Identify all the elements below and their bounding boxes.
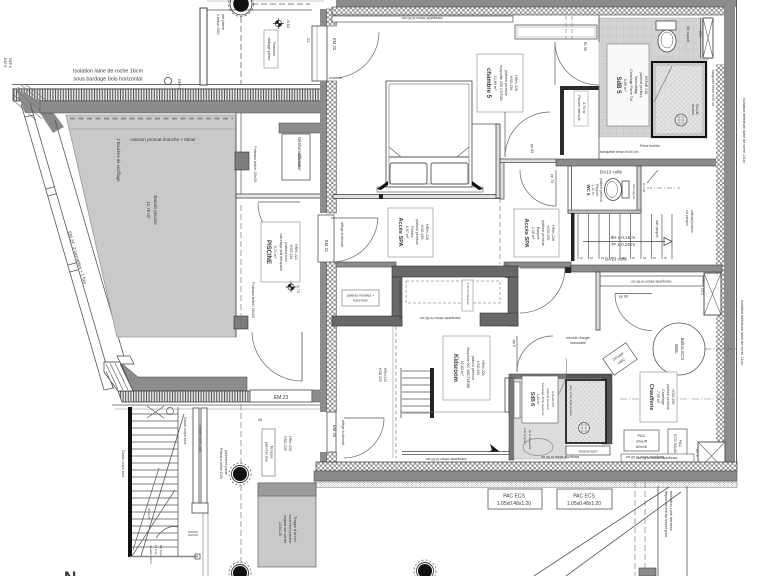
svg-text:N: N	[64, 568, 76, 576]
svg-text:SM support: SM support	[686, 26, 690, 42]
svg-text:2,44 m²: 2,44 m²	[536, 394, 540, 405]
svg-text:Chaufferie: Chaufferie	[648, 384, 654, 411]
svg-text:1.05x0.48x1.20: 1.05x0.48x1.20	[567, 501, 601, 507]
svg-text:sol parquet: sol parquet	[685, 210, 689, 226]
svg-text:ent pierre: ent pierre	[221, 14, 225, 30]
svg-text:EL 98: EL 98	[583, 42, 587, 51]
svg-text:2,40 m²: 2,40 m²	[531, 227, 535, 240]
svg-text:Carrelage Pierre Tuf: Carrelage Pierre Tuf	[629, 69, 633, 101]
svg-text:chauff: chauff	[636, 439, 648, 444]
svg-text:Carrelage Brok diamond: Carrelage Brok diamond	[541, 383, 545, 416]
svg-text:banquette béton ht 60 cm: banquette béton ht 60 cm	[631, 279, 672, 283]
svg-text:GT2: GT2	[700, 288, 704, 295]
svg-text:pp 8: pp 8	[512, 340, 516, 347]
svg-text:11,70 m²: 11,70 m²	[146, 201, 151, 219]
svg-text:DEP 6: DEP 6	[8, 58, 12, 68]
svg-text:PAC ECS: PAC ECS	[503, 494, 525, 500]
svg-text:SM support: SM support	[632, 184, 636, 200]
svg-text:local tech piscine: local tech piscine	[288, 515, 292, 544]
svg-text:2 bouches de soufflage: 2 bouches de soufflage	[116, 138, 121, 182]
svg-text:HRni 215: HRni 215	[288, 436, 292, 451]
svg-text:vide poignée: vide poignée	[523, 428, 527, 444]
svg-text:22: 22	[306, 38, 311, 43]
svg-text:banc bois: banc bois	[353, 299, 368, 303]
svg-text:paroi vitrée toute hauteur: paroi vitrée toute hauteur	[569, 385, 573, 416]
svg-text:PAC ECS: PAC ECS	[573, 494, 595, 500]
svg-text:Trappe d'accès: Trappe d'accès	[293, 516, 297, 542]
svg-text:SdB 6: SdB 6	[529, 392, 535, 406]
svg-text:14 Hau: 14 Hau	[154, 545, 158, 555]
svg-text:banquette béton ht 60 cm: banquette béton ht 60 cm	[398, 281, 402, 320]
svg-text:plancher bois: plancher bois	[265, 442, 269, 462]
svg-text:douche: douche	[691, 104, 695, 115]
svg-text:EM 21: EM 21	[324, 240, 329, 253]
svg-text:HRév 226: HRév 226	[514, 75, 518, 91]
svg-text:banquette béton ht 60 cm: banquette béton ht 60 cm	[711, 70, 715, 106]
svg-text:6,71 m²: 6,71 m²	[273, 246, 277, 260]
svg-text:HSO 239: HSO 239	[546, 226, 550, 241]
svg-text:3,89 m²: 3,89 m²	[623, 79, 627, 93]
svg-text:Accès SPA: Accès SPA	[397, 217, 403, 246]
svg-text:plafond peinture: plafond peinture	[666, 384, 670, 410]
svg-text:HRév 226: HRév 226	[481, 360, 485, 375]
svg-text:Terrasse: Terrasse	[270, 445, 274, 458]
svg-text:Garde corps bois: Garde corps bois	[121, 450, 125, 478]
svg-text:SdB 5: SdB 5	[615, 76, 621, 94]
svg-text:Poteaux béton 20x20: Poteaux béton 20x20	[253, 146, 257, 182]
svg-text:HSFaR 215: HSFaR 215	[551, 391, 555, 407]
svg-text:dallage pierre: dallage pierre	[267, 37, 271, 60]
svg-text:DEP 6: DEP 6	[177, 79, 181, 89]
svg-text:plafond peinture: plafond peinture	[546, 388, 550, 410]
svg-text:Ballon ECS: Ballon ECS	[680, 338, 685, 361]
svg-text:GT 3: GT 3	[695, 449, 699, 457]
svg-text:500L: 500L	[674, 344, 679, 354]
svg-text:Parquet: Parquet	[536, 227, 540, 240]
svg-text:7,50 m²: 7,50 m²	[656, 391, 660, 404]
svg-text:Placard mensole: Placard mensole	[577, 95, 581, 120]
svg-text:ECS 53x36: ECS 53x36	[673, 434, 677, 453]
svg-text:Poteaux béton 20x20: Poteaux béton 20x20	[251, 282, 255, 318]
svg-text:déplacement du muret pour: déplacement du muret pour	[664, 491, 668, 538]
svg-text:carrelage anti dérapant: carrelage anti dérapant	[279, 234, 283, 271]
svg-text:45: 45	[258, 418, 262, 422]
svg-text:caisson promat étanche + Miroi: caisson promat étanche + Miroir	[130, 137, 196, 142]
svg-text:plafond peinture: plafond peinture	[541, 220, 545, 246]
svg-text:Isolation laine de roche 16cm: Isolation laine de roche 16cm	[73, 69, 144, 75]
svg-text:paiement pierre: paiement pierre	[224, 450, 228, 475]
svg-text:HSO 239: HSO 239	[671, 390, 675, 405]
svg-text:pp 73: pp 73	[550, 174, 554, 183]
svg-text:Garde corps bois: Garde corps bois	[183, 417, 187, 445]
svg-text:ht 1.52: ht 1.52	[642, 183, 646, 193]
svg-text:escalier béton: escalier béton	[149, 545, 153, 564]
svg-text:Terrasse: Terrasse	[272, 42, 276, 57]
svg-text:1,11 m²: 1,11 m²	[591, 185, 595, 197]
svg-text:plafond peinture: plafond peinture	[504, 70, 508, 96]
svg-text:HSO 239: HSO 239	[476, 361, 480, 375]
svg-text:PAC: PAC	[638, 433, 646, 438]
svg-text:GC bois: GC bois	[159, 545, 163, 556]
svg-text:plafond peinture: plafond peinture	[639, 72, 643, 97]
svg-text:allège à démolir: allège à démolir	[341, 420, 345, 446]
svg-text:BA13 collé: BA13 collé	[600, 170, 622, 175]
svg-text:Isolation intérieure laine de: Isolation intérieure laine de verre 14cm	[740, 300, 744, 365]
svg-text:regard sur verrin: regard sur verrin	[283, 515, 287, 543]
svg-text:x béton D20: x béton D20	[216, 14, 220, 34]
svg-text:EM 20: EM 20	[332, 425, 337, 438]
svg-text:HSD 223: HSD 223	[378, 368, 382, 382]
svg-text:HRév 226: HRév 226	[425, 224, 429, 240]
svg-text:HSO 231: HSO 231	[289, 245, 293, 260]
svg-text:pp 66: pp 66	[619, 295, 628, 299]
svg-text:plafond peinture: plafond peinture	[599, 178, 603, 202]
svg-text:plafond bois: plafond bois	[284, 242, 288, 262]
svg-text:823x604: 823x604	[297, 153, 301, 168]
svg-text:Vanin Matgi: Vanin Matgi	[634, 76, 638, 94]
svg-text:plafond peinture: plafond peinture	[690, 210, 694, 233]
svg-text:Pièce fenêtre: Pièce fenêtre	[640, 144, 660, 148]
svg-text:EAF 8: EAF 8	[3, 58, 7, 68]
svg-text:Kidsroom: Kidsroom	[452, 354, 458, 382]
svg-text:réduction zone terrasse: réduction zone terrasse	[669, 491, 673, 531]
svg-text:cloison tech: cloison tech	[579, 450, 598, 454]
svg-text:12,89 m²: 12,89 m²	[493, 76, 497, 92]
svg-text:WC 6: WC 6	[586, 185, 591, 197]
svg-text:Parquet: Parquet	[595, 184, 599, 196]
svg-text:EM 23: EM 23	[274, 395, 289, 401]
svg-text:patères murales +: patères murales +	[347, 294, 374, 298]
svg-text:allège à démolir: allège à démolir	[340, 222, 344, 248]
svg-text:BA13 collé: BA13 collé	[605, 257, 627, 262]
svg-text:Pontex: Pontex	[410, 226, 414, 237]
svg-text:chambre 5: chambre 5	[485, 68, 491, 99]
svg-text:-6,62: -6,62	[286, 19, 291, 29]
svg-text:110x120: 110x120	[278, 522, 282, 536]
svg-text:HRév 221: HRév 221	[294, 244, 298, 260]
svg-text:moquette 150 COTON: moquette 150 COTON	[499, 65, 503, 101]
svg-text:8H x 0,16 m: 8H x 0,16 m	[611, 235, 636, 240]
svg-text:Isolation intérieure laine de: Isolation intérieure laine de verre 14cm	[742, 98, 746, 163]
svg-text:Carrelage: Carrelage	[661, 389, 665, 405]
svg-text:manuratie: manuratie	[570, 341, 586, 345]
svg-text:HSO 239: HSO 239	[509, 76, 513, 91]
svg-text:Moquette 900 NOCTURNE: Moquette 900 NOCTURNE	[466, 348, 470, 390]
svg-text:banquette béton ht 60 cm: banquette béton ht 60 cm	[626, 455, 665, 459]
svg-text:EM 22: EM 22	[332, 38, 337, 51]
svg-text:PISCINE: PISCINE	[265, 240, 271, 264]
svg-text:Accès SPA: Accès SPA	[523, 218, 529, 247]
svg-text:3,74 m²: 3,74 m²	[582, 102, 586, 114]
svg-text:banquette béton ht 60 cm: banquette béton ht 60 cm	[426, 457, 467, 461]
svg-text:banquette béton ht 60 cm: banquette béton ht 60 cm	[541, 455, 580, 459]
svg-text:meuble d'angle: meuble d'angle	[566, 336, 590, 340]
svg-text:30 x0.05: 30 x0.05	[147, 508, 151, 520]
svg-text:vide parquet: vide parquet	[655, 220, 659, 238]
svg-text:HSD 235: HSD 235	[283, 436, 287, 451]
svg-text:GT1: GT1	[698, 31, 702, 38]
svg-text:pp 83: pp 83	[530, 144, 534, 153]
svg-text:Poteaux béton D20: Poteaux béton D20	[219, 448, 223, 479]
svg-text:banquette béton ht 60 cm: banquette béton ht 60 cm	[600, 150, 639, 154]
svg-text:plafond peinture: plafond peinture	[471, 356, 475, 380]
svg-text:sous bardage bois horizontal: sous bardage bois horizontal	[74, 77, 143, 83]
svg-text:7F x 0,25 m: 7F x 0,25 m	[611, 242, 635, 247]
svg-text:1.05x0.48x1.20: 1.05x0.48x1.20	[497, 501, 531, 507]
svg-text:HSO 239: HSO 239	[420, 225, 424, 240]
svg-text:1,63 m² hammam: 1,63 m² hammam	[466, 283, 470, 306]
svg-text:banquette béton ht 60 cm: banquette béton ht 60 cm	[420, 316, 461, 320]
svg-text:10,82 m²: 10,82 m²	[460, 361, 464, 377]
svg-text:-6,72: -6,72	[296, 284, 301, 294]
svg-text:HSFaR 218: HSFaR 218	[644, 76, 648, 94]
svg-text:90x140: 90x140	[695, 104, 699, 115]
svg-text:Bassin piscine: Bassin piscine	[153, 195, 158, 225]
svg-text:PAC: PAC	[678, 440, 682, 448]
svg-text:60x46: 60x46	[636, 444, 648, 449]
svg-text:de la banquette: de la banquette	[528, 430, 532, 450]
svg-text:plafond peinture: plafond peinture	[415, 219, 419, 245]
svg-text:HRév 226: HRév 226	[551, 225, 555, 241]
svg-text:banquette béton ht 60 cm: banquette béton ht 60 cm	[402, 16, 443, 20]
svg-text:HRni 210: HRni 210	[383, 368, 387, 382]
svg-text:4,87 m²: 4,87 m²	[405, 226, 409, 239]
